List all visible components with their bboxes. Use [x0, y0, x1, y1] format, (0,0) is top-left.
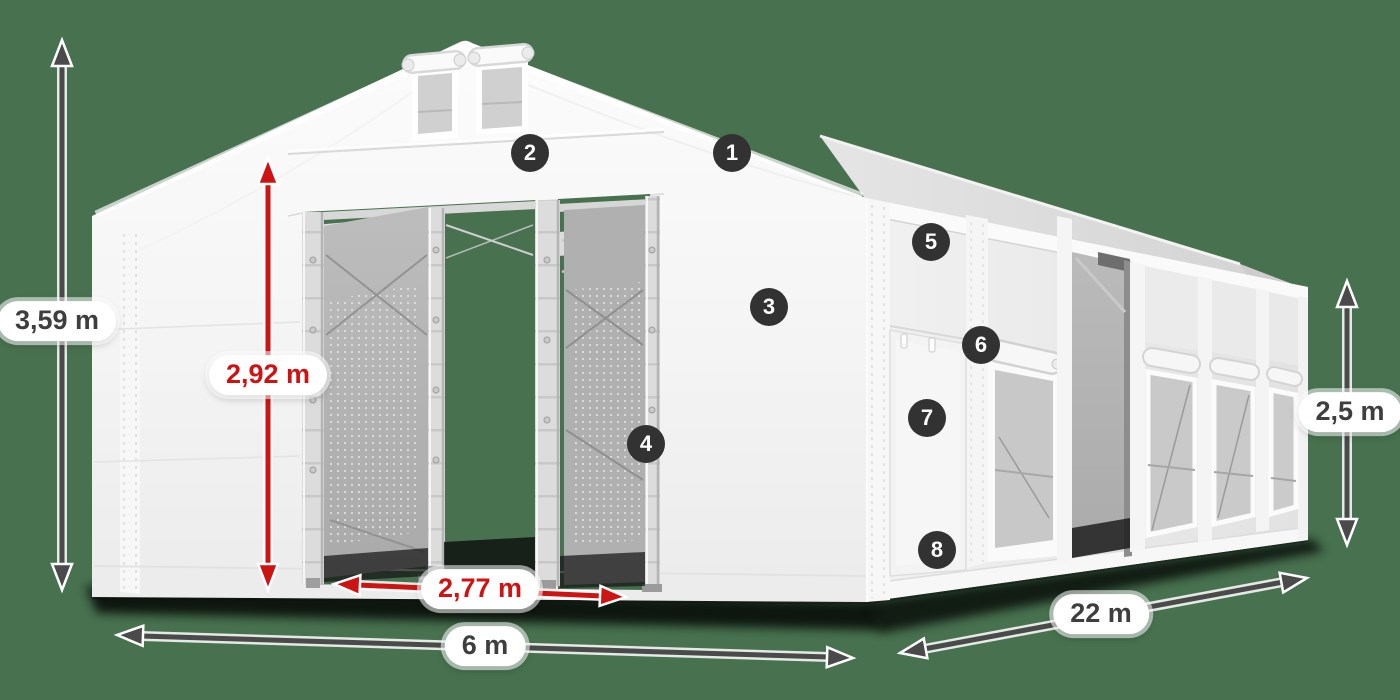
tent-dimension-diagram: 3,59 m 2,92 m 2,77 m 6 m 22 m 2,5 m 1 2 …: [0, 0, 1400, 700]
side-window: [988, 344, 1062, 562]
feature-marker-8: 8: [918, 531, 956, 569]
feature-marker-5: 5: [912, 223, 950, 261]
gable-vent: [468, 47, 534, 135]
feature-marker-2: 2: [511, 134, 549, 172]
side-window: [1214, 366, 1253, 524]
tent-illustration: [0, 0, 1400, 700]
entrance-left: [302, 201, 537, 588]
total-height-label: 3,59 m: [0, 301, 116, 341]
feature-marker-1: 1: [713, 134, 751, 172]
entrance-width-label: 2,77 m: [421, 569, 539, 609]
door-hanger-clip: [901, 334, 907, 348]
feature-marker-3: 3: [750, 288, 788, 326]
scaffold-post: [302, 212, 324, 588]
width-label: 6 m: [445, 626, 526, 666]
corner-strap: [120, 230, 140, 594]
interior-panel: [564, 205, 645, 585]
side-strap: [966, 215, 988, 568]
side-window-row: [1130, 262, 1308, 552]
entrance-right: [535, 196, 662, 592]
entrance-height-label: 2,92 m: [209, 355, 327, 395]
side-strap: [1057, 216, 1072, 566]
interior-panel: [324, 207, 428, 578]
side-height-label: 2,5 m: [1298, 392, 1400, 432]
scaffold-post: [642, 196, 662, 592]
side-window: [1271, 374, 1296, 514]
door-hanger-clip: [929, 338, 935, 352]
side-strap: [1198, 276, 1212, 542]
scaffold-post: [535, 200, 560, 590]
feature-marker-6: 6: [962, 326, 1000, 364]
feature-marker-4: 4: [627, 425, 665, 463]
length-label: 22 m: [1053, 594, 1149, 634]
open-sliding-section: [1057, 216, 1132, 566]
feature-marker-7: 7: [908, 399, 946, 437]
side-strap: [1256, 288, 1269, 532]
side-strap: [1130, 262, 1145, 552]
side-window: [1148, 357, 1195, 535]
corner-strap: [866, 198, 890, 602]
